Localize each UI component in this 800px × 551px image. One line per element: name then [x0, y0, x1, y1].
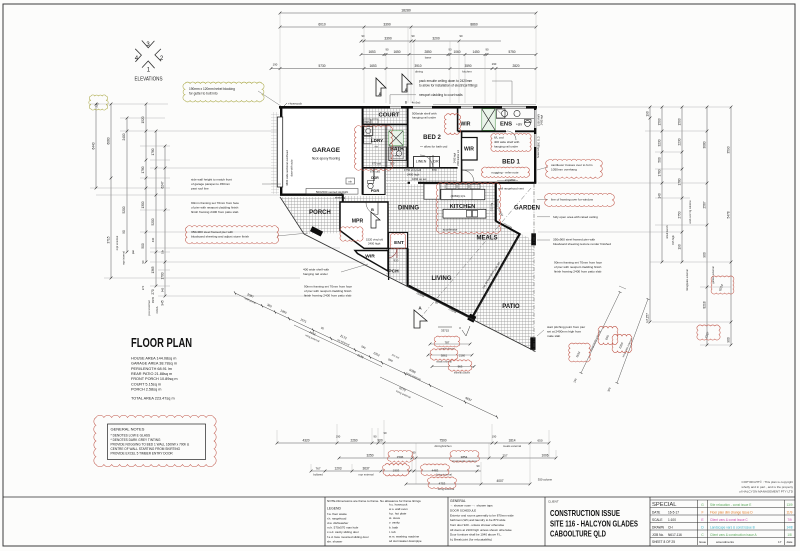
svg-text:finish framing 2400 from patio: finish framing 2400 from patio slab [191, 210, 239, 214]
svg-text:ref.257: ref.257 [646, 313, 650, 323]
svg-text:living internal: living internal [436, 473, 452, 477]
svg-text:1650: 1650 [393, 50, 400, 54]
svg-text:920: 920 [394, 259, 399, 263]
svg-text:90: 90 [477, 464, 480, 468]
svg-text:DINING: DINING [398, 206, 419, 212]
svg-text:pier: pier [132, 250, 135, 254]
svg-text:3590: 3590 [727, 146, 731, 153]
svg-text:MEALS: MEALS [477, 236, 498, 242]
svg-text:3861: 3861 [441, 353, 448, 357]
svg-text:1503: 1503 [678, 118, 682, 125]
svg-text:90/45: 90/45 [152, 296, 155, 303]
svg-text:finish framing 2400 from patio: finish framing 2400 from patio slab [304, 293, 352, 297]
svg-text:DR: DR [433, 159, 439, 163]
svg-text:1780: 1780 [151, 148, 155, 155]
svg-text:start pitching point from pier: start pitching point from pier [547, 325, 585, 329]
svg-text:→ shower nose -→ shower taps: → shower nose -→ shower taps [450, 504, 493, 508]
svg-text:* DENOTES LOW E GLASS: * DENOTES LOW E GLASS [111, 434, 151, 438]
svg-text:GENERAL: GENERAL [450, 499, 466, 503]
svg-text:for gutter to butt into: for gutter to butt into [189, 92, 218, 96]
svg-text:2400 high: 2400 high [407, 173, 420, 177]
svg-text:190: 190 [678, 244, 682, 250]
svg-text:3230: 3230 [658, 139, 662, 146]
svg-text:of HALCYON MANAGEMENT PTY LTD: of HALCYON MANAGEMENT PTY LTD [739, 490, 794, 494]
svg-text:2400: 2400 [122, 133, 126, 140]
svg-text:1700: 1700 [161, 272, 165, 279]
svg-text:BED 1: BED 1 [502, 160, 520, 166]
svg-text:SPECIAL: SPECIAL [652, 502, 677, 508]
svg-text:1300: 1300 [141, 201, 145, 208]
svg-text:b. bath: b. bath [389, 525, 399, 529]
svg-text:+hosecock: +hosecock [288, 102, 302, 106]
svg-text:270: 270 [141, 285, 145, 290]
svg-text:shr. shower: shr. shower [327, 539, 342, 543]
svg-text:1903: 1903 [393, 468, 400, 472]
svg-text:Exterior and rooms generally t: Exterior and rooms generally to be 870mm… [450, 513, 514, 517]
svg-text:400 wide shelf with: 400 wide shelf with [494, 140, 520, 144]
svg-text:allow for bath csd: allow for bath csd [424, 145, 448, 149]
svg-text:wall rangehood vent: wall rangehood vent [498, 187, 524, 191]
svg-text:All doors at 2100 high unless: All doors at 2100 high unless shown othe… [450, 528, 512, 532]
svg-text:pack ensuite ceiling down to 2: pack ensuite ceiling down to 2420mm [419, 79, 473, 83]
svg-text:mpr internal: mpr internal [122, 251, 126, 265]
svg-text:4320: 4320 [302, 438, 309, 442]
svg-text:6060: 6060 [107, 137, 111, 144]
svg-text:HWS: HWS [364, 121, 370, 124]
svg-text:male slab: male slab [547, 334, 561, 338]
svg-text:CH: CH [668, 526, 673, 530]
svg-text:LEGEND: LEGEND [327, 507, 341, 511]
svg-text:+shr: +shr [393, 154, 399, 158]
svg-text:PCH: PCH [388, 269, 399, 275]
svg-text:WIR: WIR [365, 253, 375, 259]
svg-text:900: 900 [377, 438, 383, 442]
svg-text:PROVIDE NOGGING TO BED 1 WALL: PROVIDE NOGGING TO BED 1 WALL 1600W x 70… [111, 443, 190, 447]
svg-text:8218: 8218 [703, 301, 707, 308]
svg-text:190: 190 [646, 111, 650, 117]
svg-text:1/8: 1/8 [787, 533, 792, 537]
svg-text:B: B [371, 208, 374, 212]
svg-text:SITE 116 - HALCYON GLADES: SITE 116 - HALCYON GLADES [550, 519, 638, 528]
svg-text:dining: dining [415, 70, 423, 74]
svg-text:bluaboard sheeting texture ren: bluaboard sheeting texture render finish… [553, 242, 611, 246]
svg-text:2160: 2160 [459, 353, 465, 357]
svg-text:DOOR SCHEDULE: DOOR SCHEDULE [450, 508, 476, 512]
svg-text:1060 sq set: 1060 sq set [412, 177, 427, 181]
svg-text:w.m. washing machine: w.m. washing machine [389, 534, 420, 538]
svg-text:DOR: DOR [371, 176, 379, 180]
svg-text:5200: 5200 [122, 206, 126, 213]
svg-text:f.w. floor waste: f.w. floor waste [327, 512, 347, 516]
svg-text:2750: 2750 [678, 211, 682, 218]
svg-text:90: 90 [374, 435, 377, 439]
svg-text:Site relocation - const issue: Site relocation - const issue E [710, 503, 751, 507]
svg-text:ENT: ENT [394, 240, 404, 246]
svg-text:REAR PATIO 21.88sq m: REAR PATIO 21.88sq m [131, 372, 172, 376]
svg-text:3250: 3250 [366, 453, 373, 457]
svg-text:door with auto: door with auto [290, 159, 294, 176]
svg-text:7/9: 7/9 [787, 518, 792, 522]
svg-text:500x500 vented skylight: 500x500 vented skylight [316, 190, 348, 194]
svg-text:GARAGE AREA 38.78sq m: GARAGE AREA 38.78sq m [131, 362, 177, 366]
svg-text:w.o. wall oven: w.o. wall oven [389, 507, 408, 511]
svg-text:4007: 4007 [496, 479, 503, 483]
svg-text:2161A: 2161A [156, 306, 159, 313]
svg-text:hanging rail under: hanging rail under [412, 115, 436, 119]
svg-text:3637: 3637 [362, 466, 369, 470]
svg-text:GARDEN: GARDEN [514, 206, 540, 212]
svg-text:cantilever trusses over to for: cantilever trusses over to form [551, 163, 593, 167]
svg-text:h.p. hot plate: h.p. hot plate [389, 512, 407, 516]
svg-text:8860: 8860 [470, 22, 478, 26]
svg-text:3910: 3910 [414, 64, 421, 68]
svg-text:870: 870 [432, 168, 437, 172]
svg-text:LDRY: LDRY [371, 138, 383, 143]
svg-text:DRAWN: DRAWN [652, 526, 665, 530]
svg-text:90: 90 [386, 48, 389, 52]
svg-text:t. tub: t. tub [389, 530, 396, 534]
svg-text:16-5-17: 16-5-17 [668, 511, 679, 515]
svg-text:190: 190 [492, 62, 497, 66]
svg-text:1503: 1503 [658, 118, 662, 125]
svg-text:Floor plan dim change Issue D: Floor plan dim change Issue D [710, 510, 753, 514]
svg-text:kitchen: kitchen [462, 70, 472, 74]
svg-text:PDR: PDR [371, 188, 380, 193]
svg-text:2820: 2820 [512, 64, 519, 68]
svg-text:Door furniture shall be 1040 a: Door furniture shall be 1040 above F.L. [450, 533, 502, 537]
svg-text:r.h. rangehood: r.h. rangehood [327, 517, 347, 521]
svg-text:WIR: WIR [464, 147, 474, 153]
svg-text:5478: 5478 [727, 211, 731, 218]
svg-text:sd stormwater downpipe: sd stormwater downpipe [389, 539, 422, 543]
svg-text:4483: 4483 [432, 468, 439, 472]
svg-text:finish framing 2400 from patio: finish framing 2400 from patio slab [554, 269, 602, 273]
svg-text:2400 high: 2400 high [541, 114, 544, 125]
svg-text:945: 945 [161, 300, 165, 306]
svg-text:PORCH: PORCH [309, 210, 331, 216]
svg-text:1450: 1450 [472, 50, 479, 54]
svg-text:90mm framing set 70mm from fac: 90mm framing set 70mm from face [554, 261, 602, 265]
svg-text:5200: 5200 [151, 218, 155, 225]
svg-text:350x900 steel framed pier with: 350x900 steel framed pier with [191, 230, 233, 234]
svg-text:815 high: 815 high [672, 235, 675, 245]
svg-text:c.s.d. cavity sliding door: c.s.d. cavity sliding door [327, 530, 359, 534]
svg-text:dining/kitchen: dining/kitchen [434, 444, 452, 448]
svg-text:PATIO: PATIO [502, 304, 520, 310]
svg-text:90mm framing set 70mm from fac: 90mm framing set 70mm from face [191, 201, 239, 205]
svg-text:190mm x 120mm hebel blocking: 190mm x 120mm hebel blocking [189, 87, 235, 91]
svg-text:2 Q15W: 2 Q15W [505, 178, 516, 182]
svg-text:900: 900 [727, 337, 731, 343]
svg-text:JOB No.: JOB No. [652, 533, 664, 537]
svg-text:1520: 1520 [141, 116, 145, 123]
svg-text:1550 mirror s/d: 1550 mirror s/d [457, 149, 460, 166]
svg-text:base: base [425, 56, 432, 60]
svg-text:440: 440 [151, 237, 155, 242]
svg-text:6010: 6010 [318, 22, 326, 26]
svg-text:of pier with newport cladding: of pier with newport cladding finish [554, 265, 602, 269]
svg-text:1653: 1653 [369, 64, 376, 68]
svg-text:1814: 1814 [508, 438, 515, 442]
svg-text:90: 90 [460, 34, 463, 38]
svg-text:FRONT PORCH 10.89sq m: FRONT PORCH 10.89sq m [131, 377, 178, 381]
svg-text:CLIENT: CLIENT [548, 500, 559, 504]
svg-text:LINEN: LINEN [416, 159, 427, 163]
svg-text:mpr external: mpr external [359, 473, 374, 477]
svg-text:B: B [405, 101, 407, 105]
svg-text:garden external: garden external [712, 266, 715, 284]
svg-text:6/L csd: 6/L csd [494, 136, 504, 140]
svg-text:Landscape vars & const issue B: Landscape vars & const issue B [710, 525, 755, 529]
svg-text:1060: 1060 [453, 50, 460, 54]
svg-text:nogging - refer note: nogging - refer note [491, 171, 518, 175]
svg-text:mh: mh [348, 180, 352, 184]
svg-text:1365: 1365 [151, 266, 155, 273]
svg-text:post external: post external [147, 300, 151, 315]
svg-text:90: 90 [412, 34, 415, 38]
svg-text:mpr external: mpr external [115, 235, 119, 250]
svg-text:400 wide shelf with: 400 wide shelf with [303, 268, 329, 272]
svg-text:2567: 2567 [703, 201, 707, 208]
svg-text:11/9: 11/9 [787, 510, 793, 514]
svg-text:3390: 3390 [383, 22, 391, 26]
svg-text:FLOOR PLAN: FLOOR PLAN [131, 336, 192, 350]
svg-text:500: 500 [658, 157, 662, 163]
svg-text:COPYRIGHT© : This plan is copy: COPYRIGHT© : This plan is copyright [742, 480, 794, 484]
svg-text:date: date [787, 540, 793, 544]
svg-text:silled bench: silled bench [666, 225, 669, 239]
svg-text:amendments: amendments [716, 540, 734, 544]
svg-text:COURT: COURT [379, 113, 400, 119]
svg-text:f.s.d. face mounted sliding do: f.s.d. face mounted sliding door [327, 535, 369, 539]
svg-text:2400 high: 2400 high [368, 241, 381, 245]
svg-text:of garage parapet to 450mm: of garage parapet to 450mm [191, 182, 230, 186]
svg-text:670 csd: 670 csd [372, 162, 382, 166]
svg-text:90: 90 [122, 230, 126, 234]
svg-text:m.h. 570x570 man hole: m.h. 570x570 man hole [327, 526, 359, 530]
svg-text:767: 767 [315, 466, 320, 470]
svg-text:+tr: +tr [374, 145, 378, 149]
svg-text:line of framing over for windo: line of framing over for window [551, 198, 594, 202]
svg-text:HOUSE AREA 144.08sq m: HOUSE AREA 144.08sq m [131, 357, 176, 361]
svg-text:to allow for installation of e: to allow for installation of electrical … [419, 84, 478, 88]
svg-text:650: 650 [537, 438, 542, 442]
svg-text:GENERAL NOTES: GENERAL NOTES [111, 427, 145, 432]
svg-text:14/8: 14/8 [786, 525, 792, 529]
svg-text:WIR: WIR [461, 121, 471, 127]
svg-text:1506: 1506 [397, 455, 404, 459]
svg-text:ELEVATIONS: ELEVATIONS [135, 77, 163, 83]
svg-text:(4082)(1)/L: (4082)(1)/L [451, 194, 466, 198]
svg-text:5730: 5730 [318, 64, 325, 68]
svg-text:d.w. dishwasher: d.w. dishwasher [327, 521, 348, 525]
svg-text:of pier with newport cladding: of pier with newport cladding finish [304, 289, 352, 293]
svg-text:G: G [701, 503, 704, 507]
svg-text:190: 190 [336, 435, 341, 439]
svg-text:front door 920 - unless shower: front door 920 - unless shower otherwise [450, 523, 505, 527]
svg-text:2850: 2850 [424, 50, 431, 54]
svg-text:bathroom,WC,and laundry to be: bathroom,WC,and laundry to be 870 wide [450, 518, 506, 522]
svg-text:3080: 3080 [703, 141, 707, 148]
svg-text:90: 90 [486, 48, 489, 52]
svg-text:* DENOTES DARK GREY TINTING: * DENOTES DARK GREY TINTING [111, 438, 162, 442]
svg-text:270: 270 [151, 289, 155, 295]
svg-text:SHEET 8 OF 25: SHEET 8 OF 25 [652, 540, 675, 544]
svg-text:set at 2400mm high from: set at 2400mm high from [547, 329, 582, 333]
svg-text:Client vars & construction iss: Client vars & construction issue A [710, 533, 758, 537]
svg-text:SCALE: SCALE [652, 518, 662, 522]
svg-text:1760: 1760 [658, 169, 662, 176]
svg-text:F: F [701, 510, 703, 514]
svg-text:MPR: MPR [352, 219, 364, 225]
svg-text:1050mm overhang: 1050mm overhang [551, 167, 577, 171]
svg-text:BED 2: BED 2 [423, 135, 441, 141]
svg-text:4x (hv): 4x (hv) [412, 101, 421, 105]
svg-text:33715: 33715 [441, 329, 449, 333]
svg-text:meals external: meals external [503, 444, 522, 448]
svg-text:500: 500 [141, 243, 145, 249]
svg-text:1006: 1006 [541, 453, 548, 457]
svg-text:90: 90 [362, 34, 365, 38]
svg-text:hanging rail under: hanging rail under [494, 145, 518, 149]
svg-text:1203: 1203 [334, 466, 341, 470]
svg-text:2260: 2260 [350, 438, 357, 442]
svg-text:190: 190 [492, 435, 497, 439]
svg-text:140: 140 [658, 193, 662, 199]
svg-text:b.j Break joint (for relo: b.j Break joint (for relocatability) [450, 538, 492, 542]
svg-text:1:100: 1:100 [668, 518, 676, 522]
svg-text:1780: 1780 [141, 166, 145, 173]
svg-text:4753: 4753 [439, 481, 446, 485]
svg-text:1750 vinyl s/d: 1750 vinyl s/d [404, 168, 422, 172]
svg-text:h.c. hosecock: h.c. hosecock [389, 503, 408, 507]
svg-text:963: 963 [458, 364, 463, 368]
svg-text:350 column: 350 column [538, 478, 553, 482]
svg-text:DATE: DATE [652, 511, 660, 515]
svg-text:st. stove: st. stove [389, 516, 401, 520]
svg-text:787: 787 [445, 340, 450, 344]
svg-text:6247: 6247 [161, 181, 165, 188]
svg-text:wall over t/g window: wall over t/g window [688, 200, 692, 223]
svg-text:TOTAL AREA 223.47sq m: TOTAL AREA 223.47sq m [131, 397, 175, 401]
svg-text:KITCHEN: KITCHEN [450, 204, 476, 210]
svg-text:N617-116: N617-116 [668, 533, 682, 537]
svg-text:Issue: Issue [699, 540, 707, 544]
svg-text:3854: 3854 [461, 455, 468, 459]
svg-text:newport cladding to court wall: newport cladding to court walls [419, 93, 463, 97]
svg-text:18280: 18280 [401, 8, 411, 12]
svg-text:6440: 6440 [92, 142, 96, 149]
svg-text:of pier with newport cladding: of pier with newport cladding finish [191, 205, 239, 209]
svg-text:LIVING: LIVING [431, 276, 451, 282]
svg-text:1653: 1653 [368, 50, 375, 54]
svg-text:350x900 steel framed pier with: 350x900 steel framed pier with [553, 238, 595, 242]
svg-text:3200: 3200 [432, 36, 440, 40]
svg-text:1800 SLD: 1800 SLD [538, 136, 541, 147]
svg-text:Client vars & const Issue C: Client vars & const Issue C [710, 518, 748, 522]
svg-text:bluaboard sheeting and adjust: bluaboard sheeting and adjust stone fini… [191, 234, 249, 238]
svg-text:18r: 18r [161, 250, 165, 254]
svg-text:90: 90 [449, 48, 452, 52]
svg-text:17: 17 [778, 540, 782, 544]
svg-text:internal column: internal column [454, 372, 471, 375]
svg-text:wholly and in part , and is th: wholly and in part , and is the property [742, 485, 794, 489]
svg-text:5750: 5750 [508, 50, 515, 54]
svg-text:CENTRE OF WALL STARTING FROM S: CENTRE OF WALL STARTING FROM SKIRTING [111, 447, 181, 451]
svg-text:2230: 2230 [678, 138, 682, 145]
svg-text:accelerator: accelerator [443, 228, 458, 232]
svg-text:PERI/LENGTH 68.91 lm: PERI/LENGTH 68.91 lm [131, 367, 172, 371]
svg-text:CONSTRUCTION ISSUE: CONSTRUCTION ISSUE [550, 509, 620, 518]
svg-text:fleck epoxy flooring: fleck epoxy flooring [312, 157, 340, 161]
svg-text:CABOOLTURE QLD: CABOOLTURE QLD [550, 530, 606, 539]
svg-text:living/patio external: living/patio external [686, 269, 689, 291]
svg-text:hanging rail under: hanging rail under [303, 272, 328, 276]
svg-text:3590: 3590 [464, 64, 471, 68]
svg-text:PROVIDE EXCEL 5 TIMBER ENTRY D: PROVIDE EXCEL 5 TIMBER ENTRY DOOR [111, 452, 174, 456]
svg-text:shelving: shelving [335, 196, 346, 200]
svg-text:GARAGE: GARAGE [312, 147, 341, 154]
svg-text:3390: 3390 [384, 36, 392, 40]
svg-text:90mm framing set 70mm from fac: 90mm framing set 70mm from face [304, 285, 352, 289]
svg-text:13/9: 13/9 [786, 503, 792, 507]
svg-text:PORCH 2.58sq m: PORCH 2.58sq m [131, 387, 161, 391]
svg-text:7500: 7500 [439, 438, 446, 442]
svg-text:ENS: ENS [500, 122, 512, 128]
svg-text:900: 900 [703, 252, 707, 258]
svg-text:side wall height to match fron: side wall height to match front [191, 178, 232, 182]
svg-text:G15 f/g: G15 f/g [490, 202, 494, 211]
svg-text:257: 257 [502, 453, 507, 457]
svg-text:+shr: +shr [516, 123, 523, 127]
svg-text:fully open area with raked cei: fully open area with raked ceiling [553, 215, 598, 219]
svg-text:v. vanity: v. vanity [389, 521, 400, 525]
svg-text:COURT 5.15sq m: COURT 5.15sq m [131, 382, 161, 386]
svg-text:190: 190 [273, 63, 278, 67]
svg-text:bollared: bollared [313, 473, 323, 477]
svg-text:G15 t/g: G15 t/g [497, 198, 500, 207]
svg-text:past roof line: past roof line [191, 186, 209, 190]
svg-text:2400 high: 2400 high [454, 152, 457, 163]
svg-text:1780: 1780 [678, 178, 682, 185]
svg-text:945: 945 [161, 287, 165, 292]
svg-text:3715: 3715 [107, 236, 111, 243]
svg-text:4800 wide sectional overhead: 4800 wide sectional overhead [285, 150, 289, 186]
